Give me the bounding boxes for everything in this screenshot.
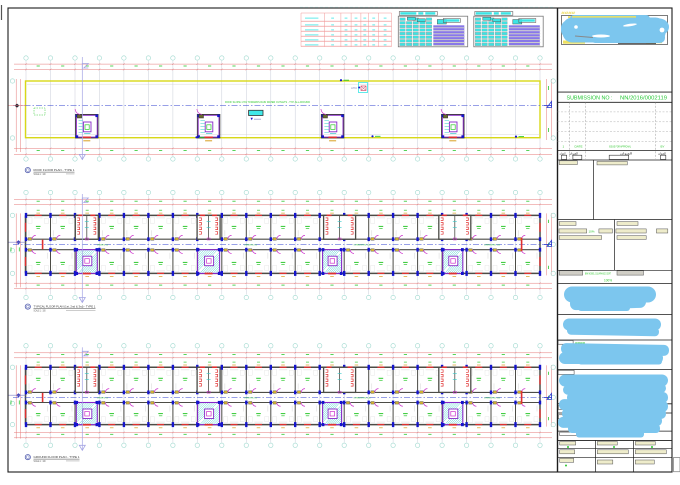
svg-text:العنوان: العنوان (658, 151, 666, 155)
svg-text:CORRIDOR WD. 2.40: CORRIDOR WD. 2.40 (354, 397, 372, 399)
svg-text:SCALE 1 : 100: SCALE 1 : 100 (34, 460, 46, 463)
svg-text:SUBMISSION NO :: SUBMISSION NO : (567, 96, 613, 102)
svg-text:CORRIDOR WD. 2.40: CORRIDOR WD. 2.40 (244, 397, 257, 399)
svg-text:####: #### (561, 11, 575, 15)
svg-text:العنوان: العنوان (569, 151, 578, 155)
svg-text:SCALE 1 : 100: SCALE 1 : 100 (34, 173, 46, 176)
svg-text:CORRIDOR WD. 2.40: CORRIDOR WD. 2.40 (244, 244, 257, 246)
svg-text:CORRIDOR WD. 2.40: CORRIDOR WD. 2.40 (97, 397, 108, 399)
svg-text:العنوان: العنوان (560, 151, 566, 155)
svg-text:BY: BY (661, 145, 665, 149)
svg-text:DATE: DATE (575, 145, 583, 149)
svg-text:GROUND FLOOR PLAN - TYPE 1: GROUND FLOOR PLAN - TYPE 1 (34, 455, 80, 459)
svg-text:ISSUE FOR APPROVAL: ISSUE FOR APPROVAL (609, 145, 631, 149)
svg-text:العنوان: العنوان (620, 151, 632, 155)
svg-text:CORRIDOR WD. 2.40: CORRIDOR WD. 2.40 (97, 244, 108, 246)
svg-text:BIM MODEL CLEARANCE CERT: BIM MODEL CLEARANCE CERT (585, 272, 611, 276)
svg-text:10%: 10% (589, 229, 595, 233)
svg-text:CORRIDOR WD. 2.40: CORRIDOR WD. 2.40 (354, 244, 372, 246)
svg-text:TYPICAL FLOOR PLAN (1st, 2nd &: TYPICAL FLOOR PLAN (1st, 2nd & 3rd) - TY… (34, 304, 96, 308)
svg-text:CORRIDOR WD. 2.40: CORRIDOR WD. 2.40 (484, 244, 501, 246)
svg-text:SCALE 1 : 100: SCALE 1 : 100 (34, 309, 46, 312)
svg-text:ROOF FLOOR PLAN - TYPE 1: ROOF FLOOR PLAN - TYPE 1 (34, 168, 75, 172)
svg-text:AHU: AHU (351, 87, 357, 90)
svg-text:CORRIDOR WD. 2.40: CORRIDOR WD. 2.40 (484, 397, 501, 399)
svg-text:100%: 100% (604, 279, 612, 283)
svg-text:NN/2016/0002119: NN/2016/0002119 (620, 96, 667, 102)
